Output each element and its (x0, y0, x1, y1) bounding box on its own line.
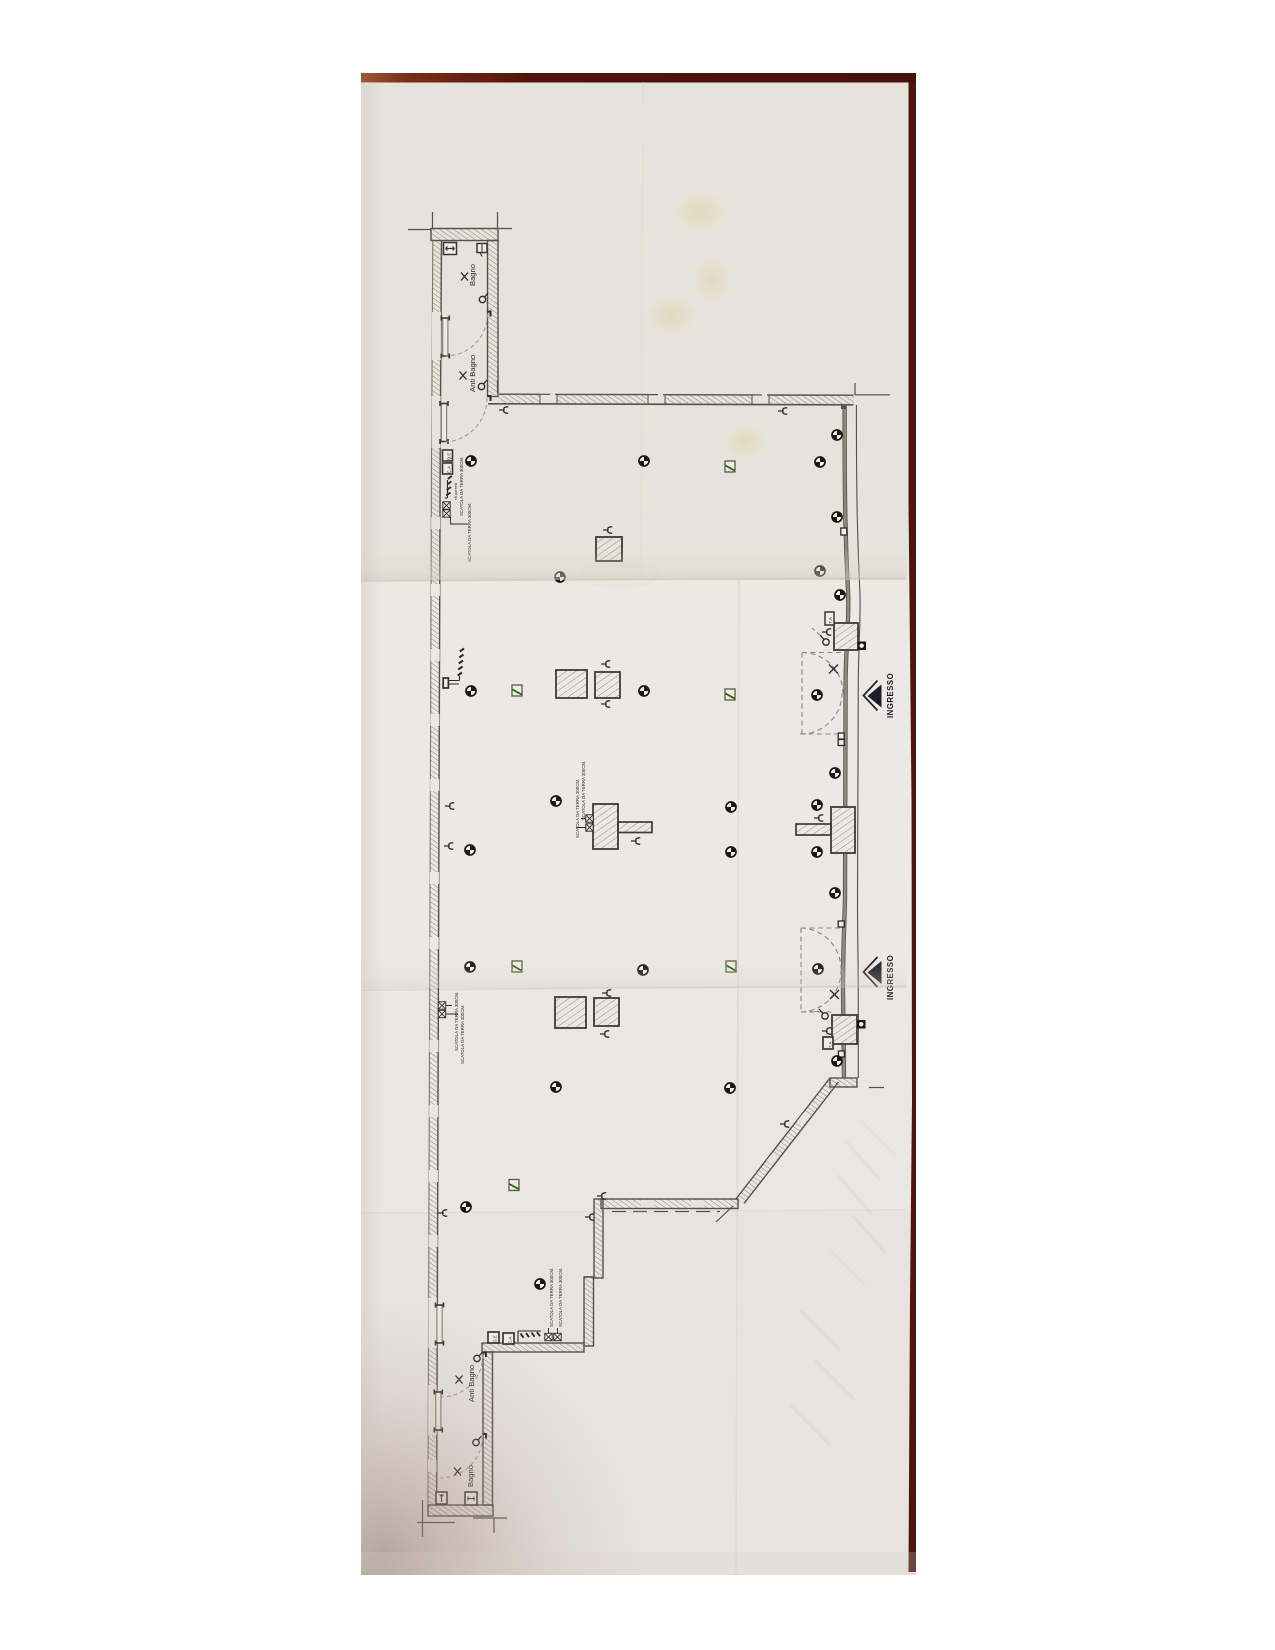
svg-text:INGRESSO: INGRESSO (886, 673, 895, 718)
svg-text:Q.E: Q.E (447, 453, 452, 461)
svg-text:SCATOLA DA TERRA 300CM.: SCATOLA DA TERRA 300CM. (460, 1005, 465, 1064)
svg-text:SCATOLA DA TERRA 300CM.: SCATOLA DA TERRA 300CM. (575, 779, 580, 838)
svg-text:Bagno: Bagno (468, 264, 477, 286)
svg-text:Anti Bagno: Anti Bagno (468, 355, 477, 392)
svg-text:T.A: T.A (828, 1041, 833, 1047)
svg-text:rifl.pannelli: rifl.pannelli (454, 483, 458, 500)
svg-text:SCATOLA DA TERRA 300CM.: SCATOLA DA TERRA 300CM. (459, 457, 464, 516)
svg-text:SCATOLA DA TERRA 300CM.: SCATOLA DA TERRA 300CM. (581, 761, 586, 820)
svg-text:SCATOLA DA TERRA 300CM.: SCATOLA DA TERRA 300CM. (454, 992, 459, 1051)
svg-text:T.A: T.A (828, 617, 833, 623)
svg-text:C.A: C.A (447, 465, 452, 474)
